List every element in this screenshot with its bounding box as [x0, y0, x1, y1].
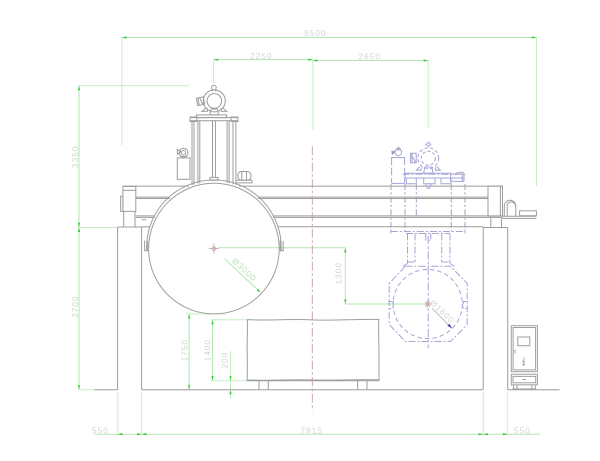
- svg-text:7815: 7815: [301, 426, 323, 436]
- svg-text:1300: 1300: [334, 262, 344, 284]
- svg-text:3350: 3350: [70, 146, 80, 168]
- svg-text:550: 550: [92, 426, 109, 436]
- svg-text:3700: 3700: [70, 296, 80, 318]
- svg-text:1400: 1400: [203, 339, 213, 361]
- svg-text:2250: 2250: [250, 51, 272, 61]
- svg-text:200: 200: [220, 352, 230, 369]
- svg-text:550: 550: [514, 426, 531, 436]
- svg-text:Ø1600: Ø1600: [428, 298, 457, 326]
- svg-text:Ø3000: Ø3000: [230, 256, 259, 284]
- svg-text:2650: 2650: [359, 52, 381, 62]
- svg-text:9500: 9500: [304, 28, 326, 38]
- svg-text:1750: 1750: [180, 339, 190, 361]
